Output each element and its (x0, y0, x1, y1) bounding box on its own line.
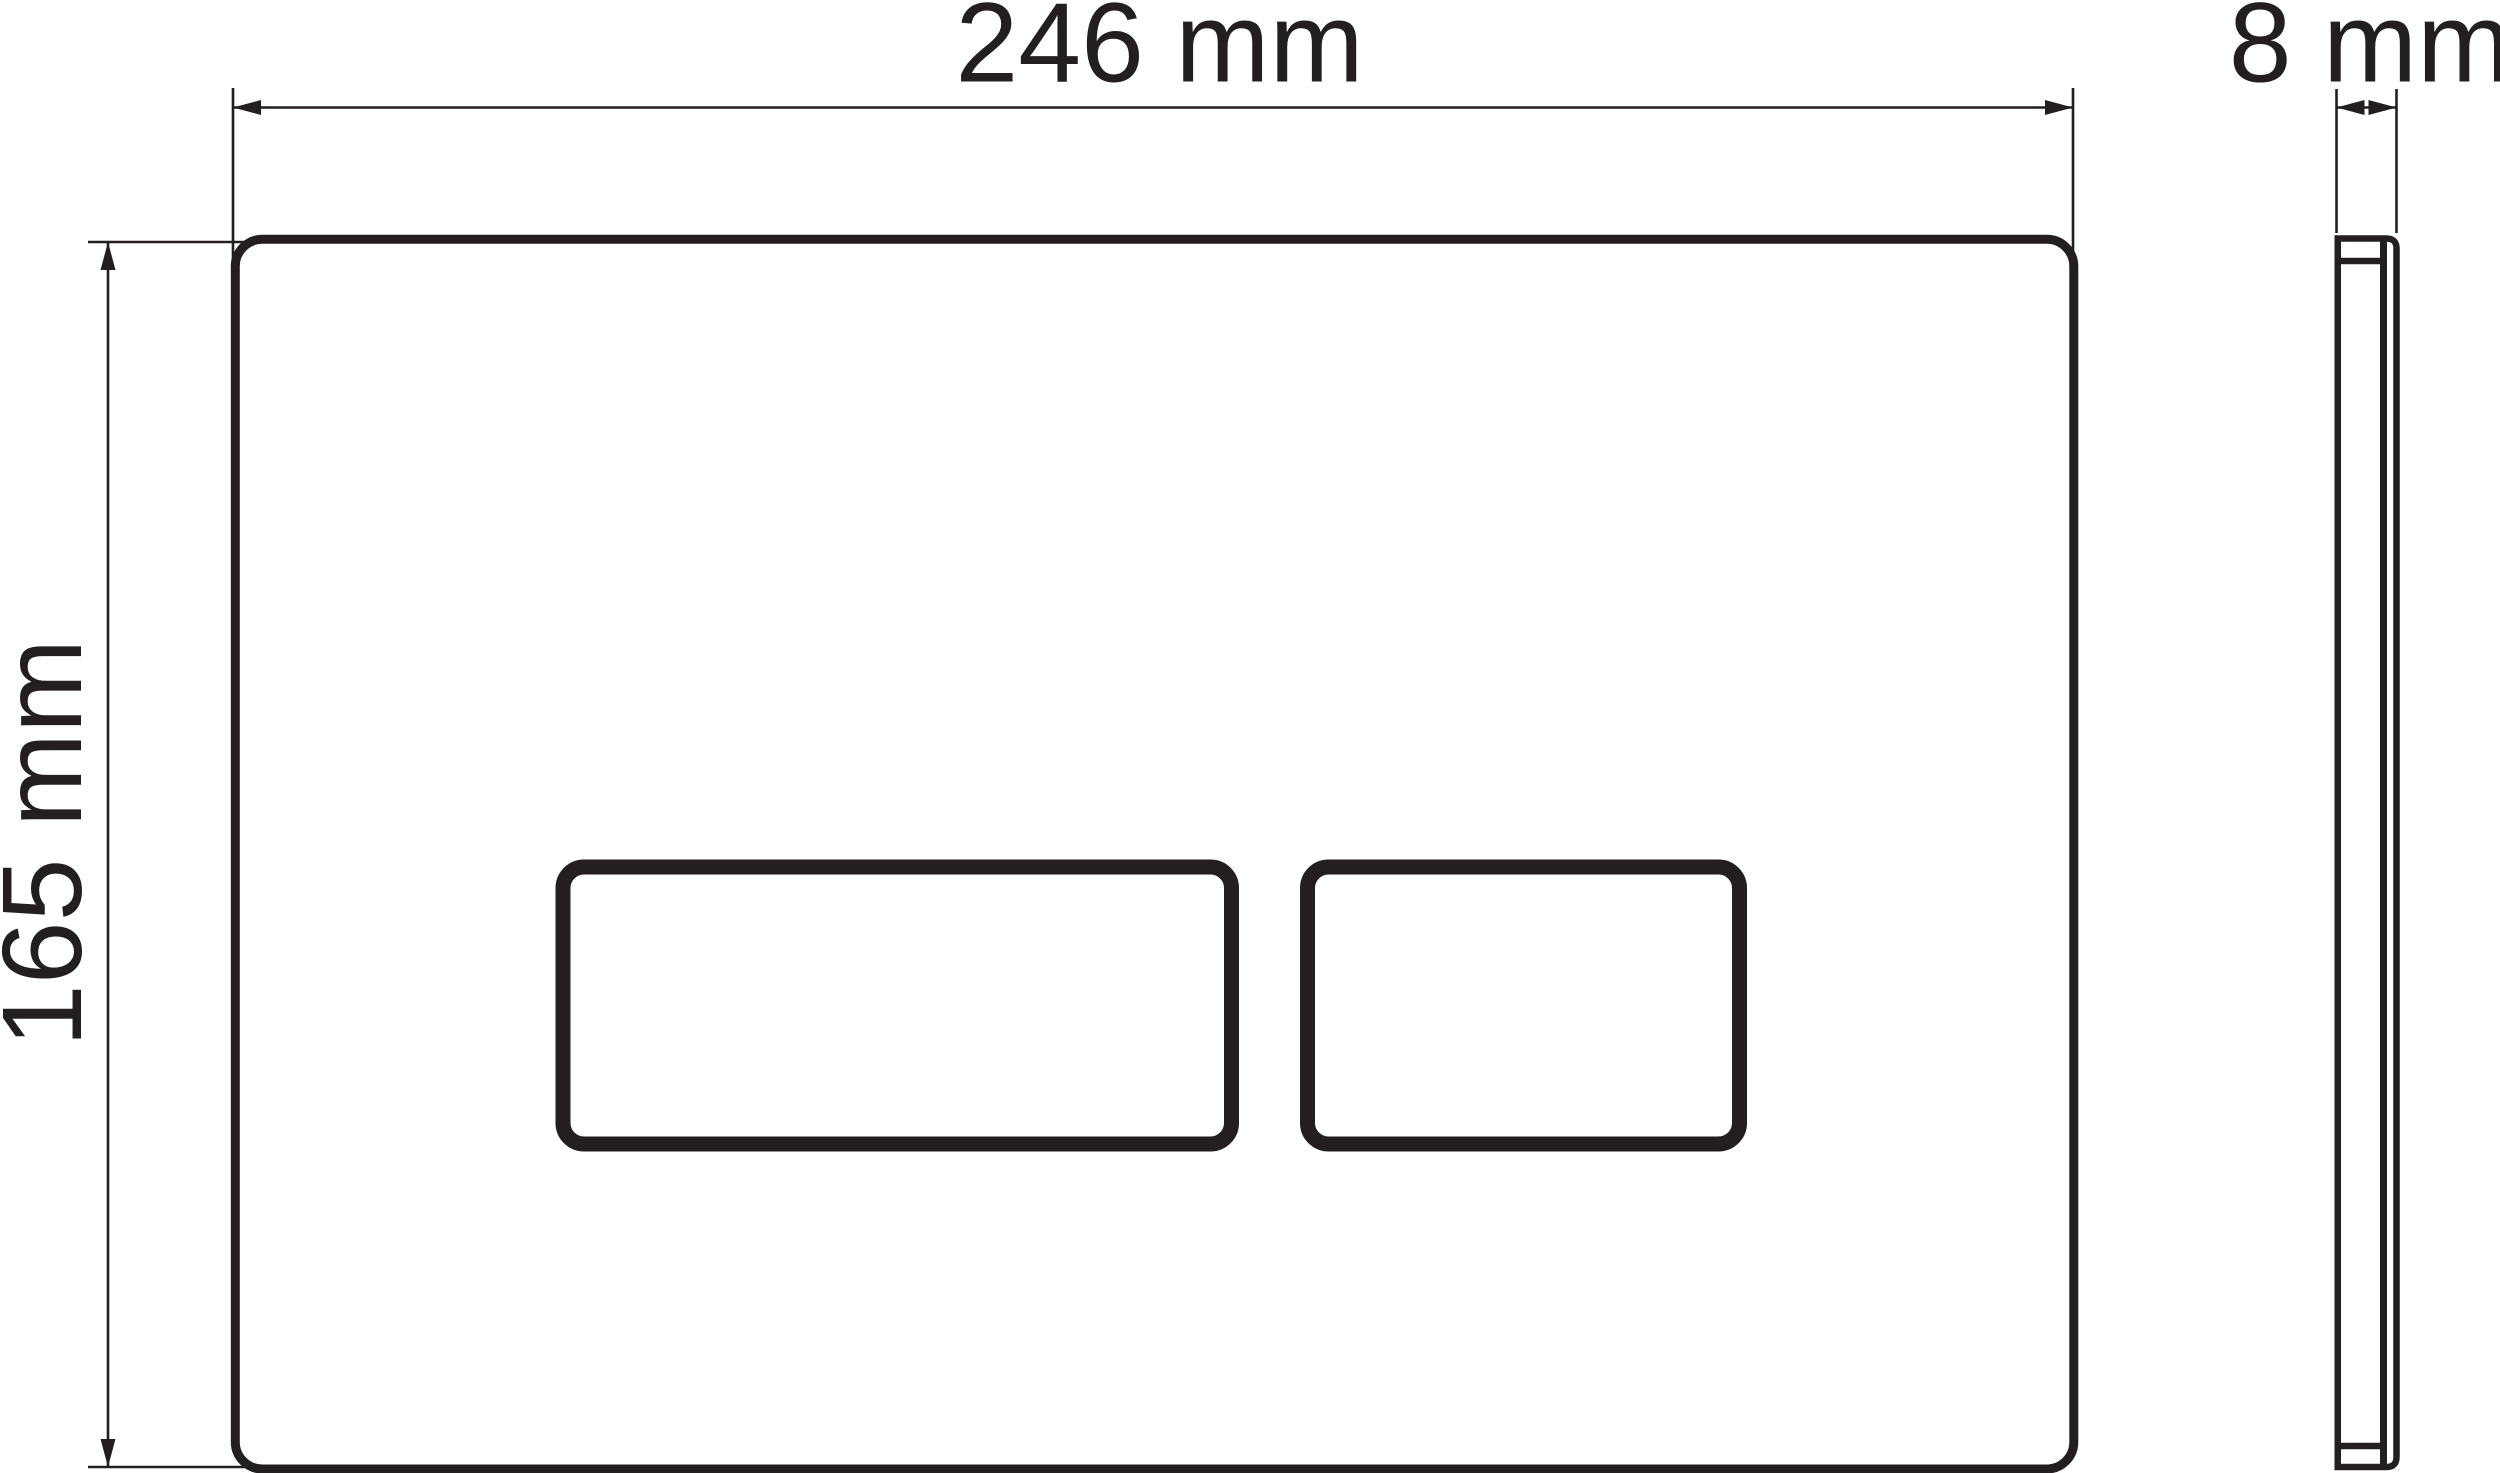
svg-text:8 mm: 8 mm (2229, 0, 2500, 106)
svg-text:165 mm: 165 mm (0, 639, 105, 1047)
svg-text:246 mm: 246 mm (955, 0, 1363, 106)
